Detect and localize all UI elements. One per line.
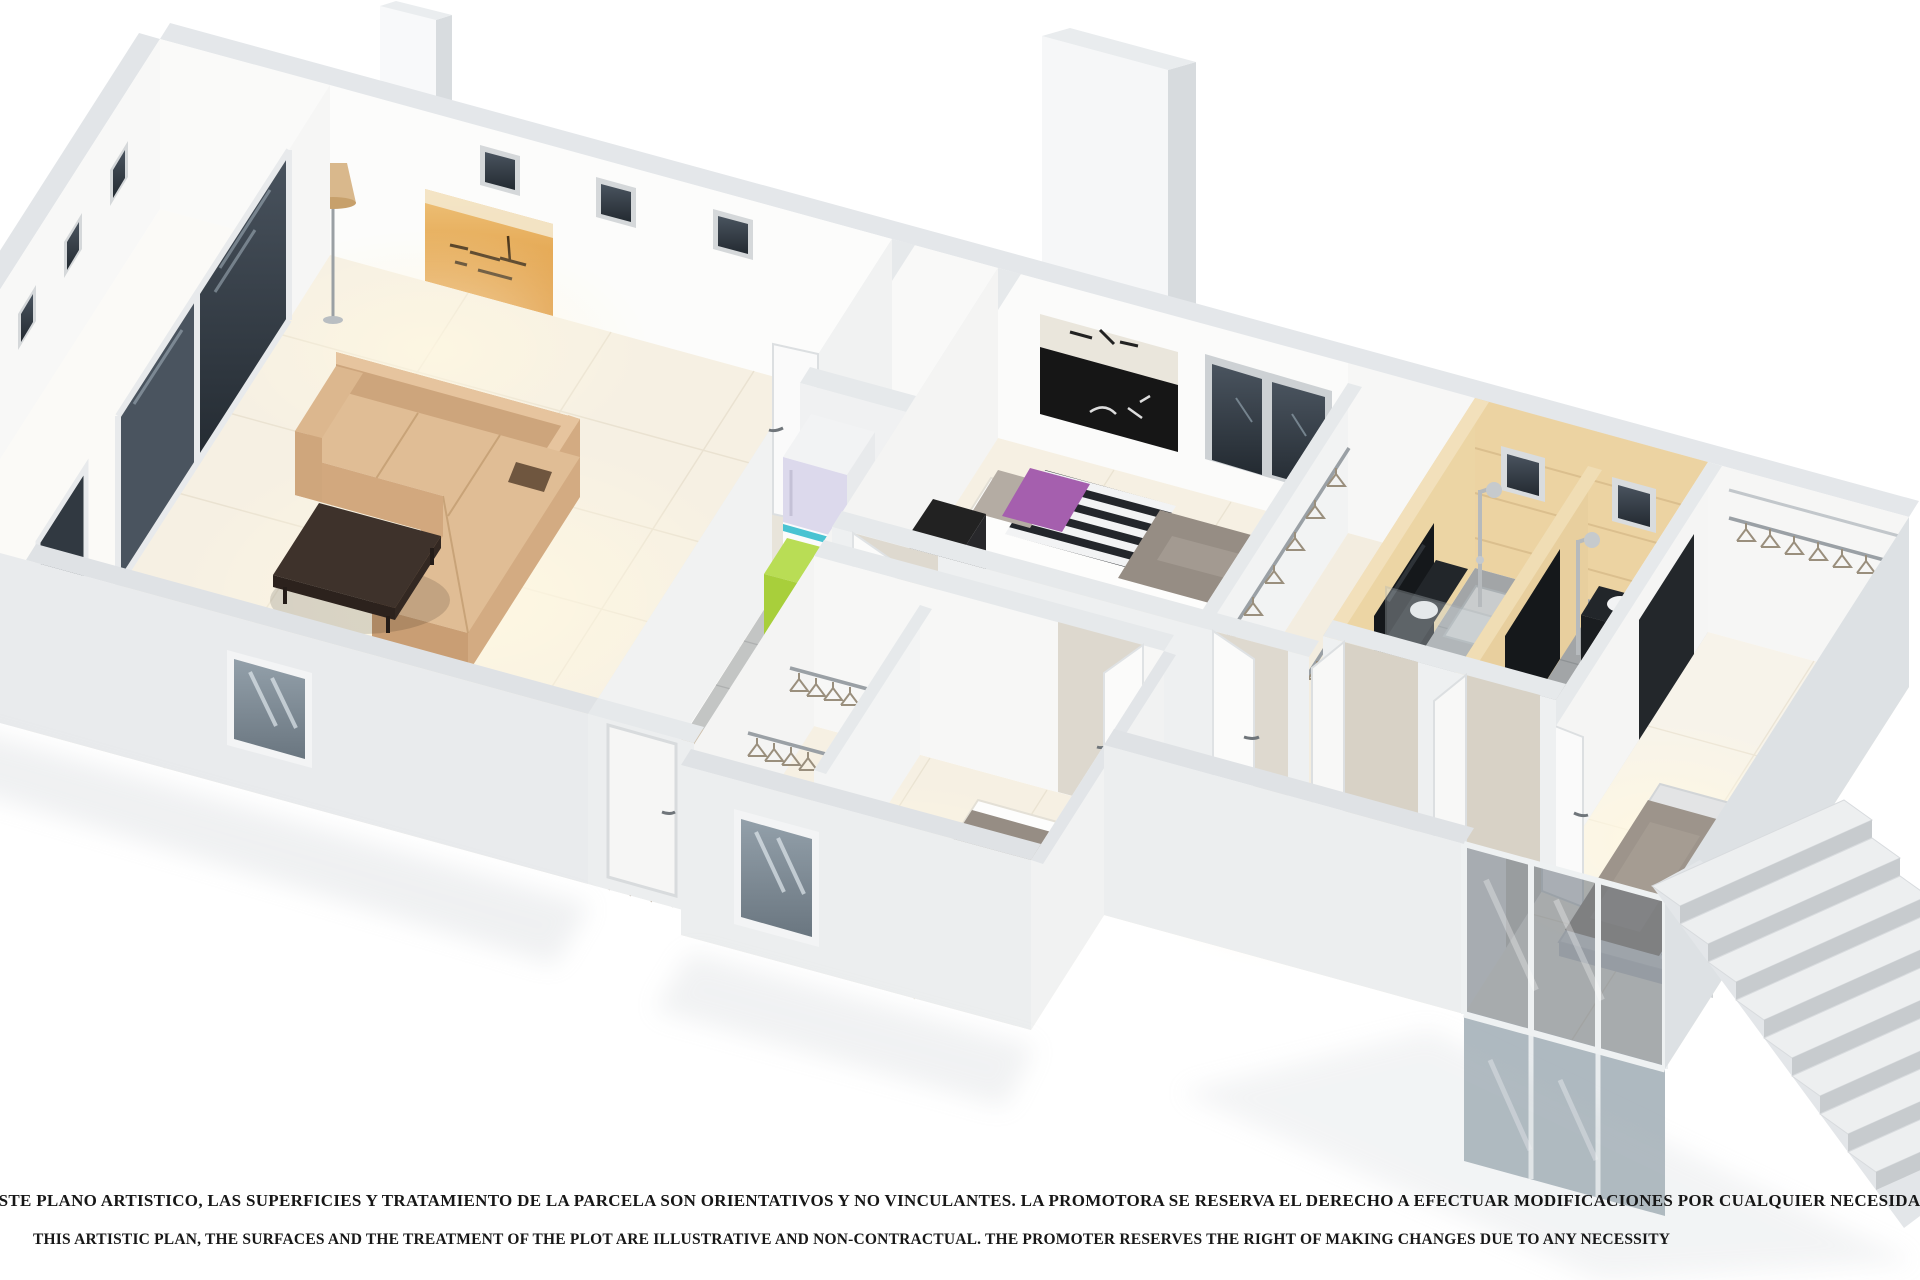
- entry-door: [608, 725, 676, 896]
- floor-plan-page: ESTE PLANO ARTISTICO, LAS SUPERFICIES Y …: [0, 0, 1920, 1280]
- front-window: [734, 809, 819, 947]
- floor-plan-rendering: [0, 0, 1920, 1280]
- disclaimer-english: THIS ARTISTIC PLAN, THE SURFACES AND THE…: [33, 1231, 1670, 1249]
- disclaimer-spanish: ESTE PLANO ARTISTICO, LAS SUPERFICIES Y …: [0, 1191, 1920, 1211]
- isometric-scene: [0, 0, 1920, 1280]
